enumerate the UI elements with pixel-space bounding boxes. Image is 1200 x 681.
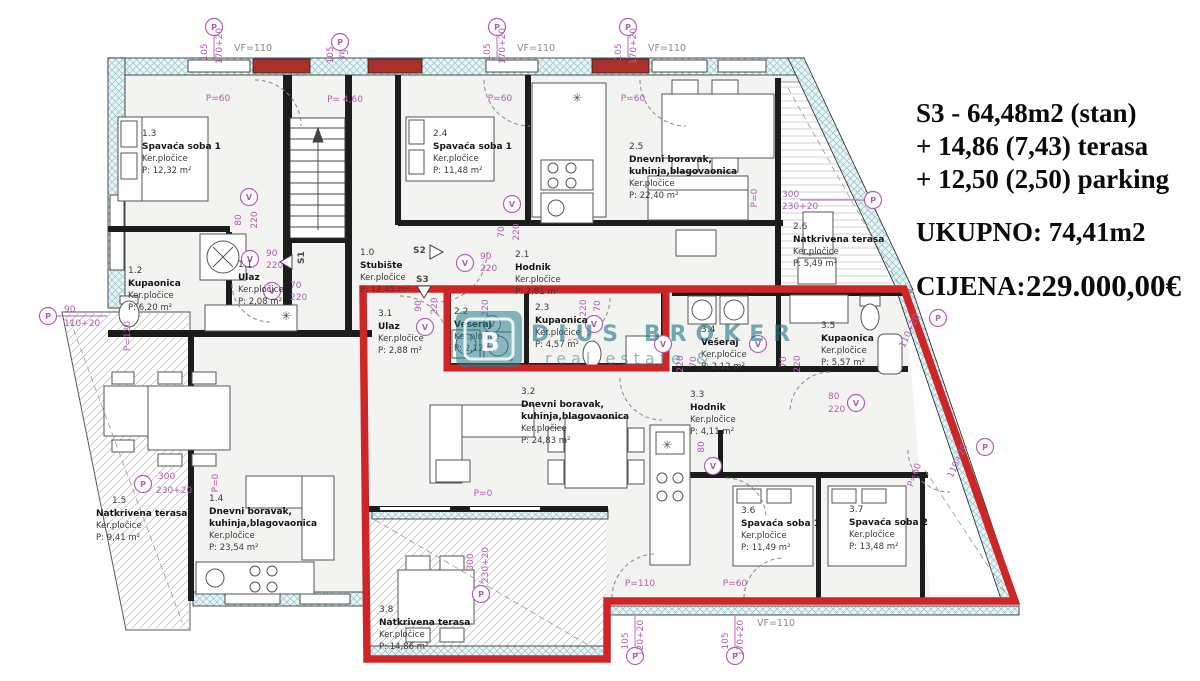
dim-vf110: VF=110: [648, 43, 686, 54]
dim-80: 80: [234, 214, 244, 226]
p-marker: P: [870, 196, 876, 205]
watermark-line1: DIUS BROKER: [531, 322, 799, 347]
dim-220: 220: [430, 297, 440, 314]
room-area: P: 6,20 m²: [128, 303, 172, 313]
dim-120: 120+20: [636, 620, 646, 656]
dim-220: 220: [793, 355, 803, 372]
v-marker: V: [853, 399, 860, 408]
room-name: Spavaća soba 1: [433, 141, 512, 152]
room-name: Kupaonica: [128, 279, 181, 289]
dim-p120: P=120: [123, 321, 133, 351]
room-name: Stubište: [360, 260, 402, 271]
room-id: 1.5: [112, 496, 126, 506]
room-area: P: 11,48 m²: [433, 166, 482, 176]
room-id: 2.1: [515, 250, 529, 260]
room-name: Spavaća soba 2: [849, 517, 928, 528]
dim-70: 70: [593, 300, 603, 312]
p-marker: P: [45, 312, 51, 321]
red-wall-segment: [368, 59, 422, 73]
room-floor: Ker.pločice: [521, 423, 567, 434]
room-floor: Ker.pločice: [821, 345, 867, 356]
dim-105: 105: [621, 632, 631, 649]
room-floor: Ker.pločice: [741, 530, 787, 541]
room-id: 3.1: [378, 309, 392, 319]
dim-90: 90: [266, 249, 278, 259]
v-marker: V: [246, 193, 253, 202]
dim-80: 80: [697, 441, 707, 453]
room-floor: Ker.pločice: [209, 530, 255, 541]
p-marker: P: [935, 314, 941, 323]
room-name: kuhinja,blagovaonica: [521, 412, 629, 422]
p-marker: P: [337, 38, 343, 47]
room-area: P: 5,49 m²: [793, 259, 837, 269]
p-marker: P: [982, 443, 988, 452]
section-marker-s2: S2: [413, 246, 426, 256]
watermark-logo-letter: B: [480, 328, 500, 358]
room-floor: Ker.pločice: [690, 414, 736, 425]
room-floor: Ker.pločice: [433, 153, 479, 164]
dim-80: 80: [828, 392, 840, 402]
dim-70: 70: [290, 281, 302, 291]
room-floor: Ker.pločice: [238, 284, 284, 295]
room-area: P: 4,11 m²: [690, 427, 734, 437]
room-id: 1.3: [142, 129, 156, 139]
panel-price-label: CIJENA:: [916, 271, 1026, 301]
room-area: P: 13,48 m²: [849, 542, 898, 552]
room-id: 3.3: [690, 390, 704, 400]
dim-p460: P= 4,60: [327, 95, 363, 105]
room-floor: Ker.pločice: [515, 274, 561, 285]
room-name: Hodnik: [690, 403, 727, 413]
dim-170: 170+20: [215, 28, 225, 64]
dim-p60: P=60: [723, 579, 748, 589]
room-floor: Ker.pločice: [360, 272, 406, 283]
room-name: Spavaća soba 1: [741, 518, 820, 529]
vent-icon: ✳: [281, 309, 291, 323]
dim-105: 105: [614, 43, 624, 60]
room-area: P: 11,49 m²: [741, 543, 790, 553]
dim-300: 300: [782, 190, 799, 200]
dim-75: 75: [341, 49, 351, 60]
room-id: 1.0: [360, 248, 375, 258]
room-name: Dnevni boravak,: [521, 400, 604, 410]
room-id: 3.8: [379, 605, 394, 615]
watermark-line2: real estate &: [545, 349, 713, 368]
dim-p0: P=0: [474, 489, 493, 499]
room-id: 2.5: [629, 142, 643, 152]
panel-total-line: UKUPNO: 74,41m2: [916, 217, 1145, 247]
room-floor: Ker.pločice: [142, 153, 188, 164]
dim-170: 170+20: [629, 28, 639, 64]
room-area: P: 12,32 m²: [142, 166, 191, 176]
section-marker-s3: S3: [416, 275, 429, 285]
room-area: P: 2,88 m²: [378, 346, 422, 356]
room-id: 3.6: [741, 506, 756, 516]
dim-220: 220: [290, 293, 307, 303]
dim-230: 230+20: [156, 486, 192, 496]
room-name: Spavaća soba 1: [142, 141, 221, 152]
p-marker: P: [140, 480, 146, 489]
dim-90: 90: [480, 252, 492, 262]
room-name: Natkrivena terasa: [96, 509, 187, 519]
dim-105: 105: [200, 43, 210, 60]
v-marker: V: [710, 462, 717, 471]
room-name: Ulaz: [238, 273, 260, 283]
room-floor: Ker.pločice: [793, 246, 839, 257]
panel-terrace-line: + 14,86 (7,43) terasa: [916, 131, 1149, 161]
dim-300: 300: [158, 472, 175, 482]
room-floor: Ker.pločice: [849, 529, 895, 540]
room-id: 2.3: [535, 303, 549, 313]
room-name: Hodnik: [515, 263, 552, 273]
section-marker-s1: S1: [297, 251, 307, 264]
dim-230: 230+20: [481, 547, 491, 583]
dim-220: 220: [828, 405, 845, 415]
panel-area-line: S3 - 64,48m2 (stan): [916, 98, 1137, 128]
room-name: Dnevni boravak,: [209, 507, 292, 517]
room-id: 3.2: [521, 387, 535, 397]
room-area: P: 2,08 m²: [238, 297, 282, 307]
v-marker: V: [462, 259, 469, 268]
dim-105: 105: [483, 43, 493, 60]
dim-300: 300: [466, 553, 476, 570]
dim-170: 170+20: [736, 620, 746, 656]
red-wall-segment: [253, 59, 310, 73]
dim-90: 90: [414, 300, 424, 312]
panel-price-value: 229.000,00€: [1026, 268, 1182, 303]
room-id: 2.6: [793, 222, 808, 232]
dim-230: 230+20: [782, 202, 818, 212]
vent-icon: ✳: [662, 438, 672, 452]
room-floor: Ker.pločice: [379, 629, 425, 640]
dim-105: 105: [326, 46, 336, 63]
room-name: Kupaonica: [821, 334, 874, 344]
room-area: P: 9,41 m²: [96, 533, 140, 543]
room-area: P: 22,40 m²: [629, 191, 678, 201]
dim-70: 70: [779, 356, 789, 368]
panel-parking-line: + 12,50 (2,50) parking: [916, 164, 1170, 194]
dim-p0: P=0: [211, 473, 221, 492]
room-name: kuhinja,blagovaonica: [629, 167, 737, 177]
dim-vf110: VF=110: [757, 618, 795, 629]
floorplan-drawing: P 105 170+20 VF=110 P 105 75 P 105 170+2…: [0, 0, 1200, 681]
room-id: 1.2: [128, 266, 142, 276]
room-area: P: 14,86 m²: [379, 642, 428, 652]
v-marker: V: [422, 323, 429, 332]
dim-220: 220: [250, 211, 260, 228]
dim-170: 170+20: [498, 28, 508, 64]
dim-p110: P=110: [625, 579, 655, 589]
dim-70: 70: [497, 226, 507, 238]
dim-p60: P=60: [488, 94, 513, 104]
room-area: P: 24,83 m²: [521, 436, 570, 446]
listing-info-panel: S3 - 64,48m2 (stan) + 14,86 (7,43) teras…: [916, 98, 1182, 303]
room-name: Natkrivena terasa: [379, 618, 470, 628]
room-name: Ulaz: [378, 322, 400, 332]
dim-220: 220: [579, 299, 589, 316]
dim-90: 90: [64, 305, 76, 315]
room-area: P: 12,45 m²: [360, 285, 409, 295]
dim-p60: P=60: [206, 94, 231, 104]
p-marker: P: [478, 590, 484, 599]
room-id: 2.4: [433, 129, 448, 139]
room-floor: Ker.pločice: [629, 178, 675, 189]
room-area: P: 23,54 m²: [209, 543, 258, 553]
dim-p0: P=0: [750, 188, 760, 207]
room-id: 1.1: [238, 260, 252, 270]
vent-icon: ✳: [572, 91, 582, 105]
dim-vf110: VF=110: [517, 43, 555, 54]
room-floor: Ker.pločice: [378, 333, 424, 344]
room-id: 1.4: [209, 494, 224, 504]
dim-220: 220: [480, 264, 497, 274]
staircase: [290, 118, 345, 238]
dim-vf110: VF=110: [234, 43, 272, 54]
dim-p60: P=60: [621, 94, 646, 104]
dim-220: 220: [512, 223, 522, 240]
room-floor: Ker.pločice: [96, 520, 142, 531]
dim-105: 105: [721, 632, 731, 649]
v-marker: V: [509, 200, 516, 209]
room-id: 3.7: [849, 505, 863, 515]
floorplan-page: P 105 170+20 VF=110 P 105 75 P 105 170+2…: [0, 0, 1200, 681]
dim-110: 110+20: [64, 319, 100, 329]
room-id: 3.5: [821, 321, 835, 331]
room-name: Dnevni boravak,: [629, 155, 712, 165]
room-name: kuhinja,blagovaonica: [209, 519, 317, 529]
room-area: P: 2,81 m²: [515, 287, 559, 297]
room-area: P: 5,57 m²: [821, 358, 865, 368]
room-name: Natkrivena terasa: [793, 235, 884, 245]
room-floor: Ker.pločice: [128, 290, 174, 301]
